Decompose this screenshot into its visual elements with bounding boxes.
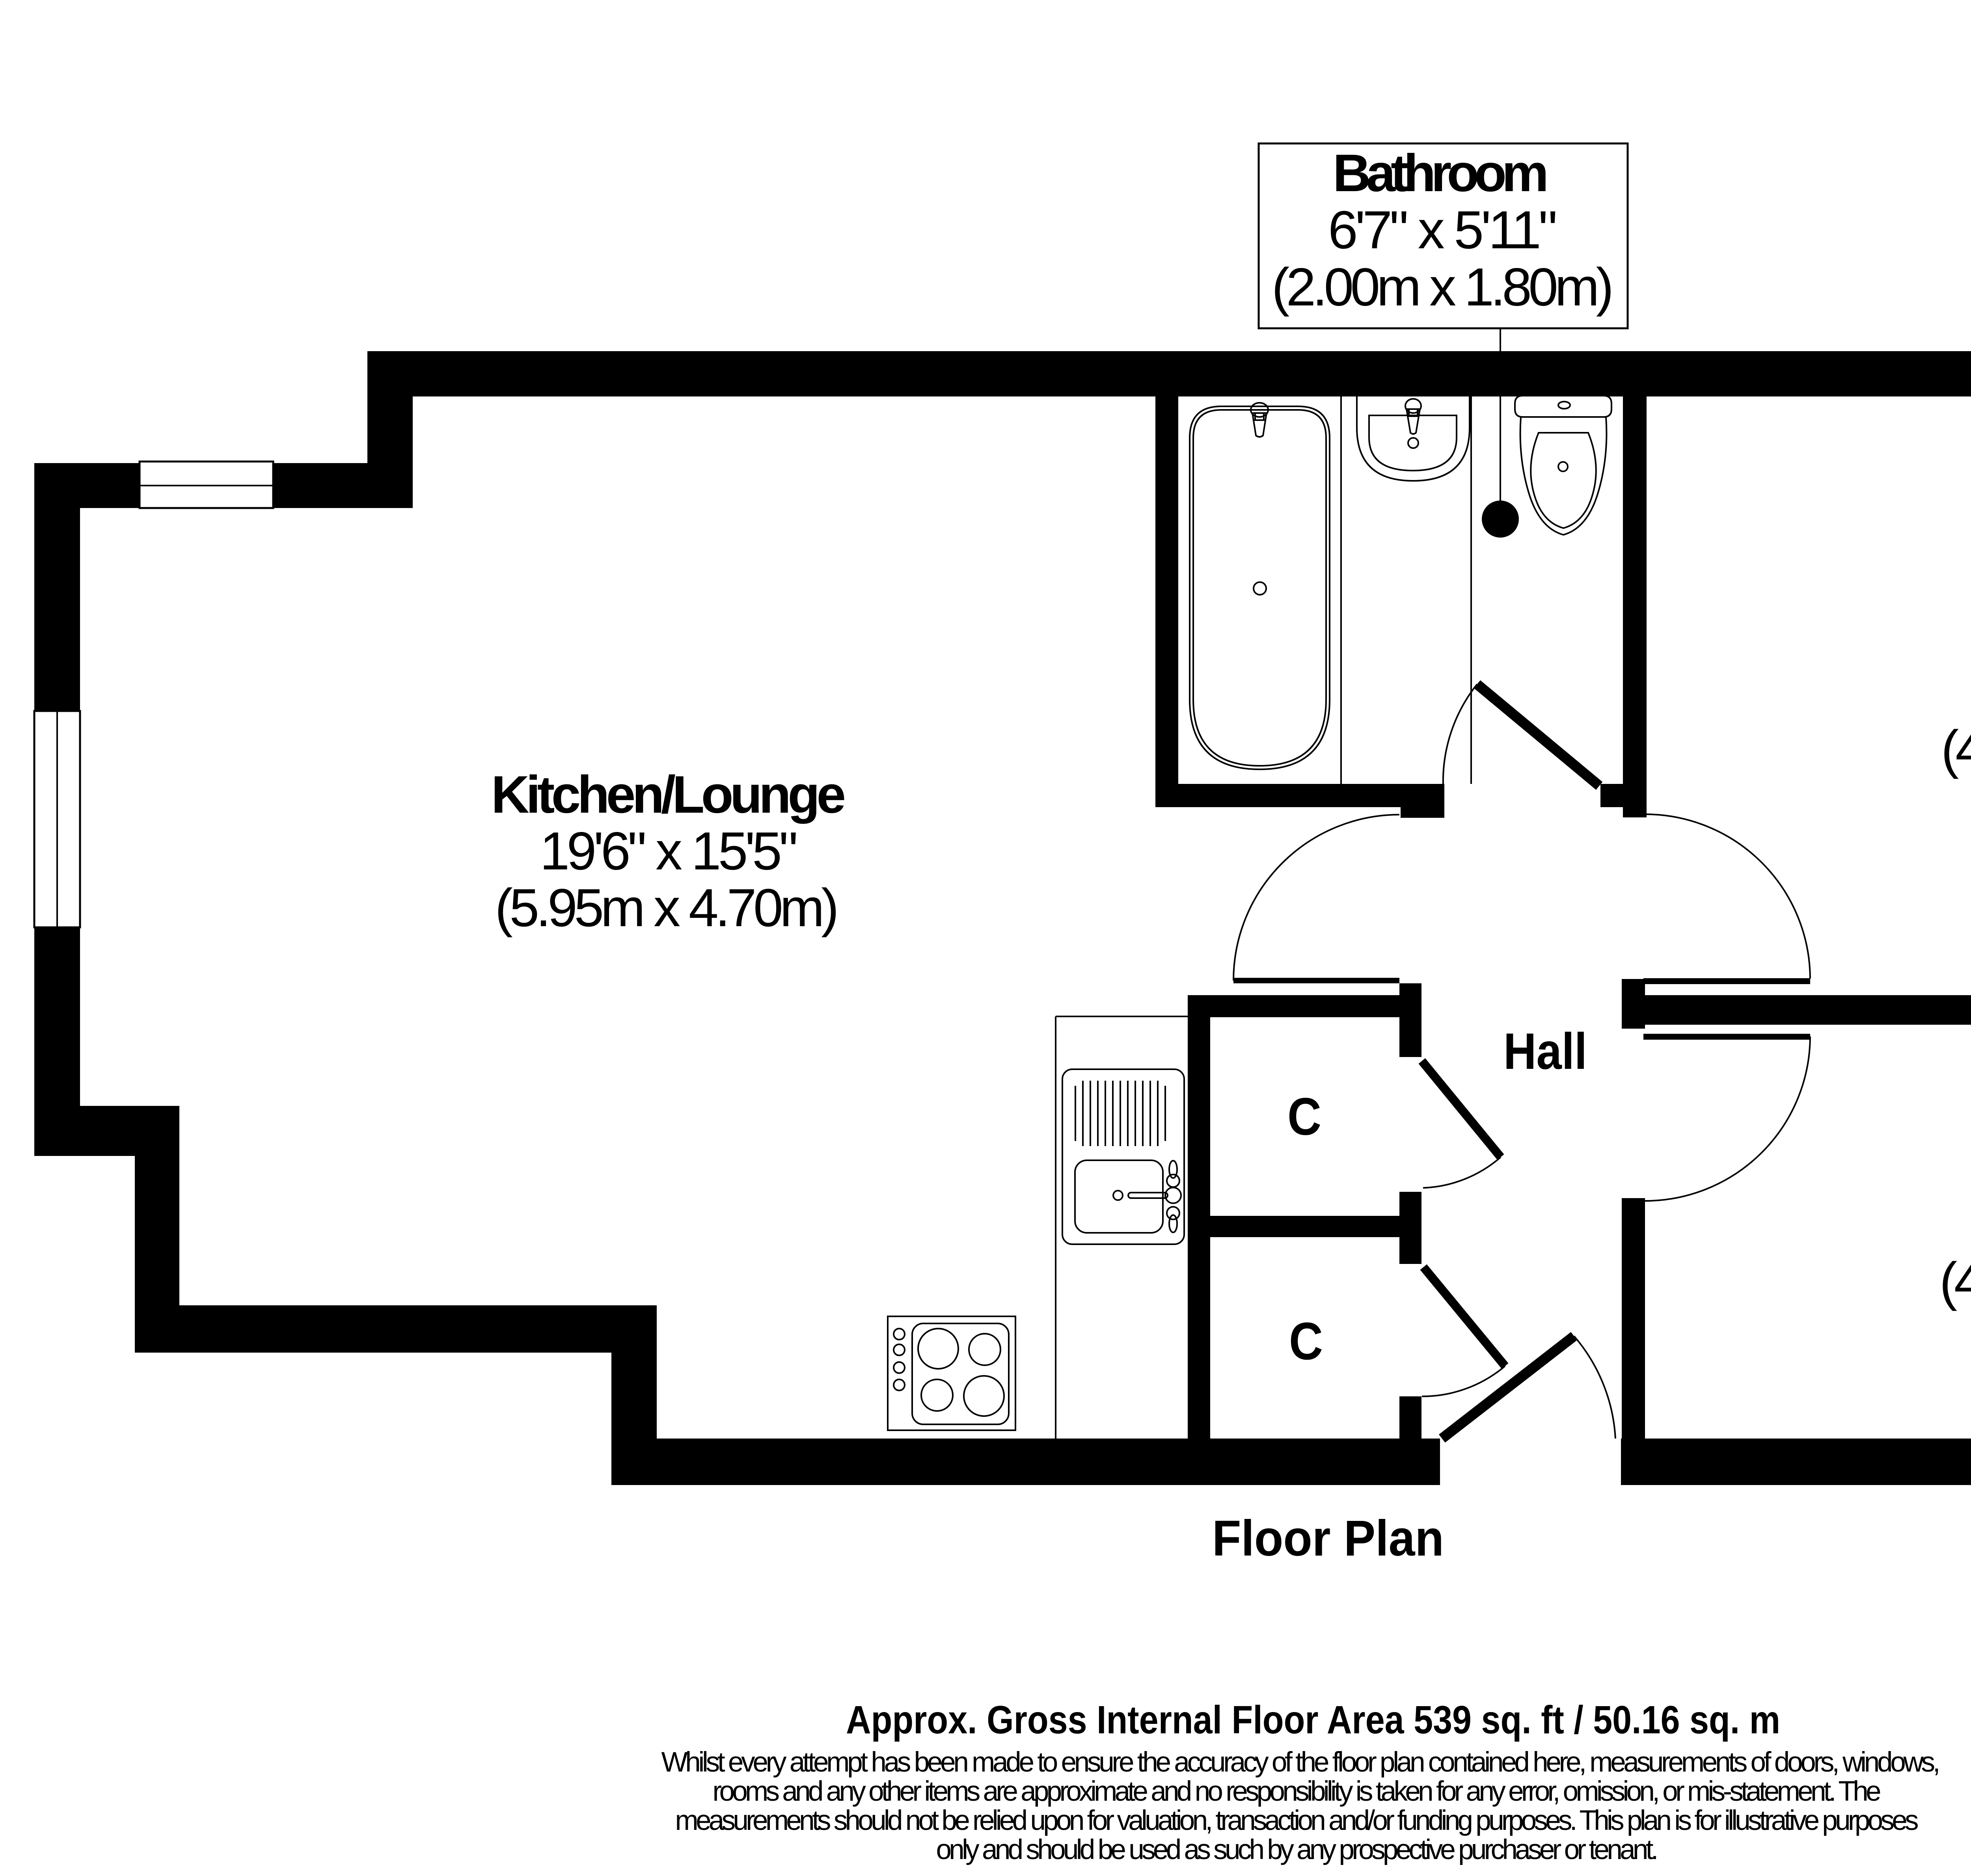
- svg-text:(4.20m x 2.70m): (4.20m x 2.70m): [1941, 719, 1971, 779]
- svg-text:6'7" x 5'11": 6'7" x 5'11": [1328, 200, 1557, 260]
- svg-text:(4.20m x 1.90m): (4.20m x 1.90m): [1939, 1251, 1971, 1311]
- svg-text:19'6" x 15'5": 19'6" x 15'5": [540, 821, 798, 881]
- svg-text:(2.00m x 1.80m): (2.00m x 1.80m): [1272, 257, 1614, 317]
- svg-text:Hall: Hall: [1503, 1022, 1587, 1080]
- svg-text:measurements should not be rel: measurements should not be relied upon f…: [675, 1805, 1919, 1836]
- svg-text:Whilst every attempt has been: Whilst every attempt has been made to en…: [661, 1747, 1941, 1778]
- svg-text:Approx. Gross Internal Floor A: Approx. Gross Internal Floor Area 539 sq…: [846, 1698, 1780, 1742]
- svg-text:rooms and any other items are: rooms and any other items are approximat…: [713, 1776, 1882, 1807]
- svg-text:only and should be used as suc: only and should be used as such by any p…: [936, 1834, 1659, 1865]
- svg-text:C: C: [1289, 1312, 1323, 1371]
- svg-text:Bathroom: Bathroom: [1333, 144, 1549, 203]
- svg-text:Kitchen/Lounge: Kitchen/Lounge: [491, 765, 846, 824]
- svg-text:Floor Plan: Floor Plan: [1212, 1510, 1444, 1567]
- svg-text:C: C: [1287, 1087, 1321, 1146]
- svg-text:(5.95m x 4.70m): (5.95m x 4.70m): [495, 878, 839, 938]
